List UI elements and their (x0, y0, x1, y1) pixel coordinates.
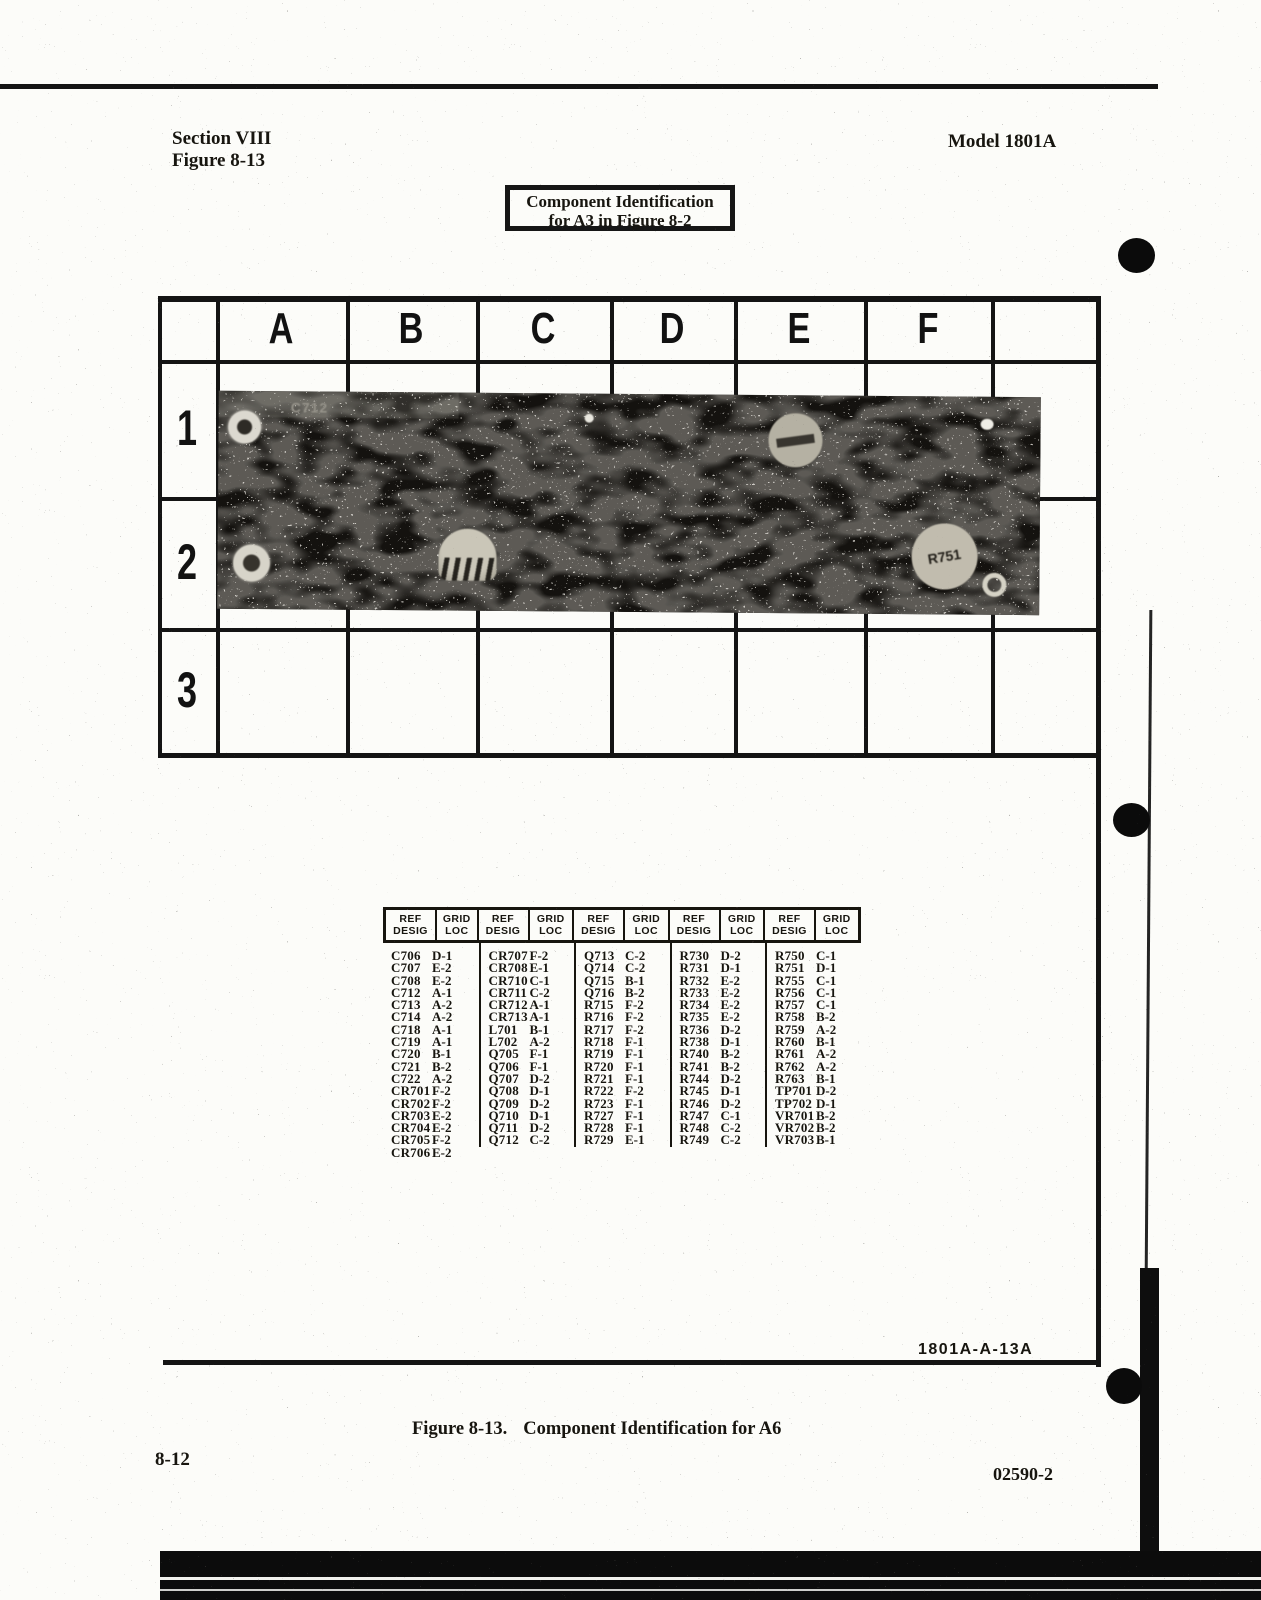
table-group-header: REFDESIGGRIDLOC (383, 907, 479, 943)
grid-column-label: B (399, 304, 424, 354)
table-group-body: Q713C-2Q714C-2Q715B-1Q716B-2R715F-2R716F… (574, 943, 670, 1147)
grid-column-label: D (660, 304, 685, 354)
table-column-header: REFDESIG (574, 910, 625, 940)
table-group: REFDESIGGRIDLOCR730D-2R731D-1R732E-2R733… (670, 907, 766, 1159)
punch-hole-middle (1113, 803, 1150, 837)
grid-line-horizontal (158, 753, 1098, 758)
table-row: R749C-2 (672, 1134, 766, 1146)
figure-frame-bottom-edge (163, 1360, 1101, 1365)
ref-desig-cell: Q712 (481, 1134, 530, 1146)
section-header: Section VIII Figure 8-13 (172, 128, 271, 172)
grid-column-label: E (788, 304, 811, 354)
section-label: Section VIII (172, 128, 271, 150)
table-column-header: GRIDLOC (437, 910, 477, 940)
table-column-header: REFDESIG (765, 910, 816, 940)
manual-page: Section VIII Figure 8-13 Model 1801A Com… (0, 0, 1261, 1600)
title-box: Component Identification for A3 in Figur… (505, 185, 735, 231)
grid-loc-cell: E-2 (432, 1147, 452, 1159)
title-box-line1: Component Identification (510, 192, 730, 211)
grid-line-horizontal (158, 360, 1098, 364)
table-group: REFDESIGGRIDLOCC706D-1C707E-2C708E-2C712… (383, 907, 479, 1159)
figure-id-label: 1801A-A-13A (918, 1341, 1033, 1359)
circuit-board-photo: C712 R751 (217, 391, 1041, 615)
model-label: Model 1801A (948, 131, 1056, 153)
table-column-header: GRIDLOC (721, 910, 764, 940)
page-number: 8-12 (155, 1449, 190, 1471)
table-row: R729E-1 (576, 1134, 670, 1146)
component-marking-smudge (776, 434, 815, 448)
table-row: Q712C-2 (481, 1134, 575, 1146)
grid-line-horizontal (158, 628, 1098, 632)
grid-row-label: 1 (177, 399, 197, 457)
grid-row-label: 3 (177, 661, 197, 719)
ref-desig-cell: R729 (576, 1134, 625, 1146)
punch-hole-bottom (1106, 1368, 1142, 1404)
table-group-header: REFDESIGGRIDLOC (479, 907, 575, 943)
table-column-header: REFDESIG (386, 910, 437, 940)
table-group-header: REFDESIGGRIDLOC (574, 907, 670, 943)
table-column-header: GRIDLOC (530, 910, 573, 940)
scan-bar-line (160, 1589, 1261, 1591)
document-number: 02590-2 (993, 1464, 1053, 1485)
table-group-body: C706D-1C707E-2C708E-2C712A-1C713A-2C714A… (383, 943, 479, 1159)
table-column-header: REFDESIG (479, 910, 530, 940)
solder-highlight-dot (585, 414, 594, 423)
figure-ref-label: Figure 8-13 (172, 150, 271, 172)
grid-column-label: C (531, 304, 556, 354)
grid-loc-cell: E-1 (625, 1134, 645, 1146)
round-component-bottom-right: R751 (911, 523, 978, 590)
table-row: CR706E-2 (383, 1147, 479, 1159)
scan-bottom-bar (160, 1551, 1261, 1600)
grid-line-vertical (158, 296, 162, 758)
table-group-header: REFDESIGGRIDLOC (670, 907, 766, 943)
grid-line-horizontal (158, 296, 1098, 302)
table-group-header: REFDESIGGRIDLOC (765, 907, 861, 943)
solder-highlight-dot (981, 419, 994, 430)
round-component-top (768, 413, 822, 467)
table-group: REFDESIGGRIDLOCQ713C-2Q714C-2Q715B-1Q716… (574, 907, 670, 1159)
grid-column-label: F (918, 304, 939, 354)
grid-loc-cell: C-2 (721, 1134, 741, 1146)
table-row: VR703B-1 (767, 1134, 861, 1146)
board-component-label: C712 (291, 399, 329, 415)
component-marking-label: R751 (927, 546, 963, 567)
table-column-header: GRIDLOC (816, 910, 858, 940)
mounting-hole-top-left (224, 407, 264, 447)
caption-text: Component Identification for A6 (523, 1419, 781, 1439)
table-group-body: R750C-1R751D-1R755C-1R756C-1R757C-1R758B… (765, 943, 861, 1147)
component-table: REFDESIGGRIDLOCC706D-1C707E-2C708E-2C712… (383, 907, 861, 1159)
table-column-header: GRIDLOC (625, 910, 668, 940)
table-group: REFDESIGGRIDLOCR750C-1R751D-1R755C-1R756… (765, 907, 861, 1159)
page-edge-line (1145, 610, 1153, 1280)
mounting-hole-bottom-left (229, 541, 273, 585)
ref-desig-cell: R749 (672, 1134, 721, 1146)
figure-caption: Figure 8-13.Component Identification for… (412, 1419, 781, 1440)
grid-loc-cell: B-1 (816, 1134, 836, 1146)
grid-loc-cell: C-2 (530, 1134, 550, 1146)
table-group-body: R730D-2R731D-1R732E-2R733E-2R734E-2R735E… (670, 943, 766, 1147)
coil-component (438, 529, 496, 581)
mounting-hole-bottom-right (982, 573, 1006, 597)
title-box-line2: for A3 in Figure 8-2 (510, 211, 730, 230)
page-top-edge-line (0, 84, 1158, 89)
punch-hole-top (1118, 238, 1155, 273)
grid-column-label: A (269, 304, 294, 354)
photo-grain-texture (217, 391, 1041, 615)
ref-desig-cell: VR703 (767, 1134, 816, 1146)
table-group: REFDESIGGRIDLOCCR707F-2CR708E-1CR710C-1C… (479, 907, 575, 1159)
caption-figure-number: Figure 8-13. (412, 1419, 507, 1439)
table-column-header: REFDESIG (670, 910, 721, 940)
scan-bar-line (160, 1577, 1261, 1580)
ref-desig-cell: CR706 (383, 1147, 432, 1159)
grid-row-label: 2 (177, 533, 197, 591)
table-group-body: CR707F-2CR708E-1CR710C-1CR711C-2CR712A-1… (479, 943, 575, 1147)
